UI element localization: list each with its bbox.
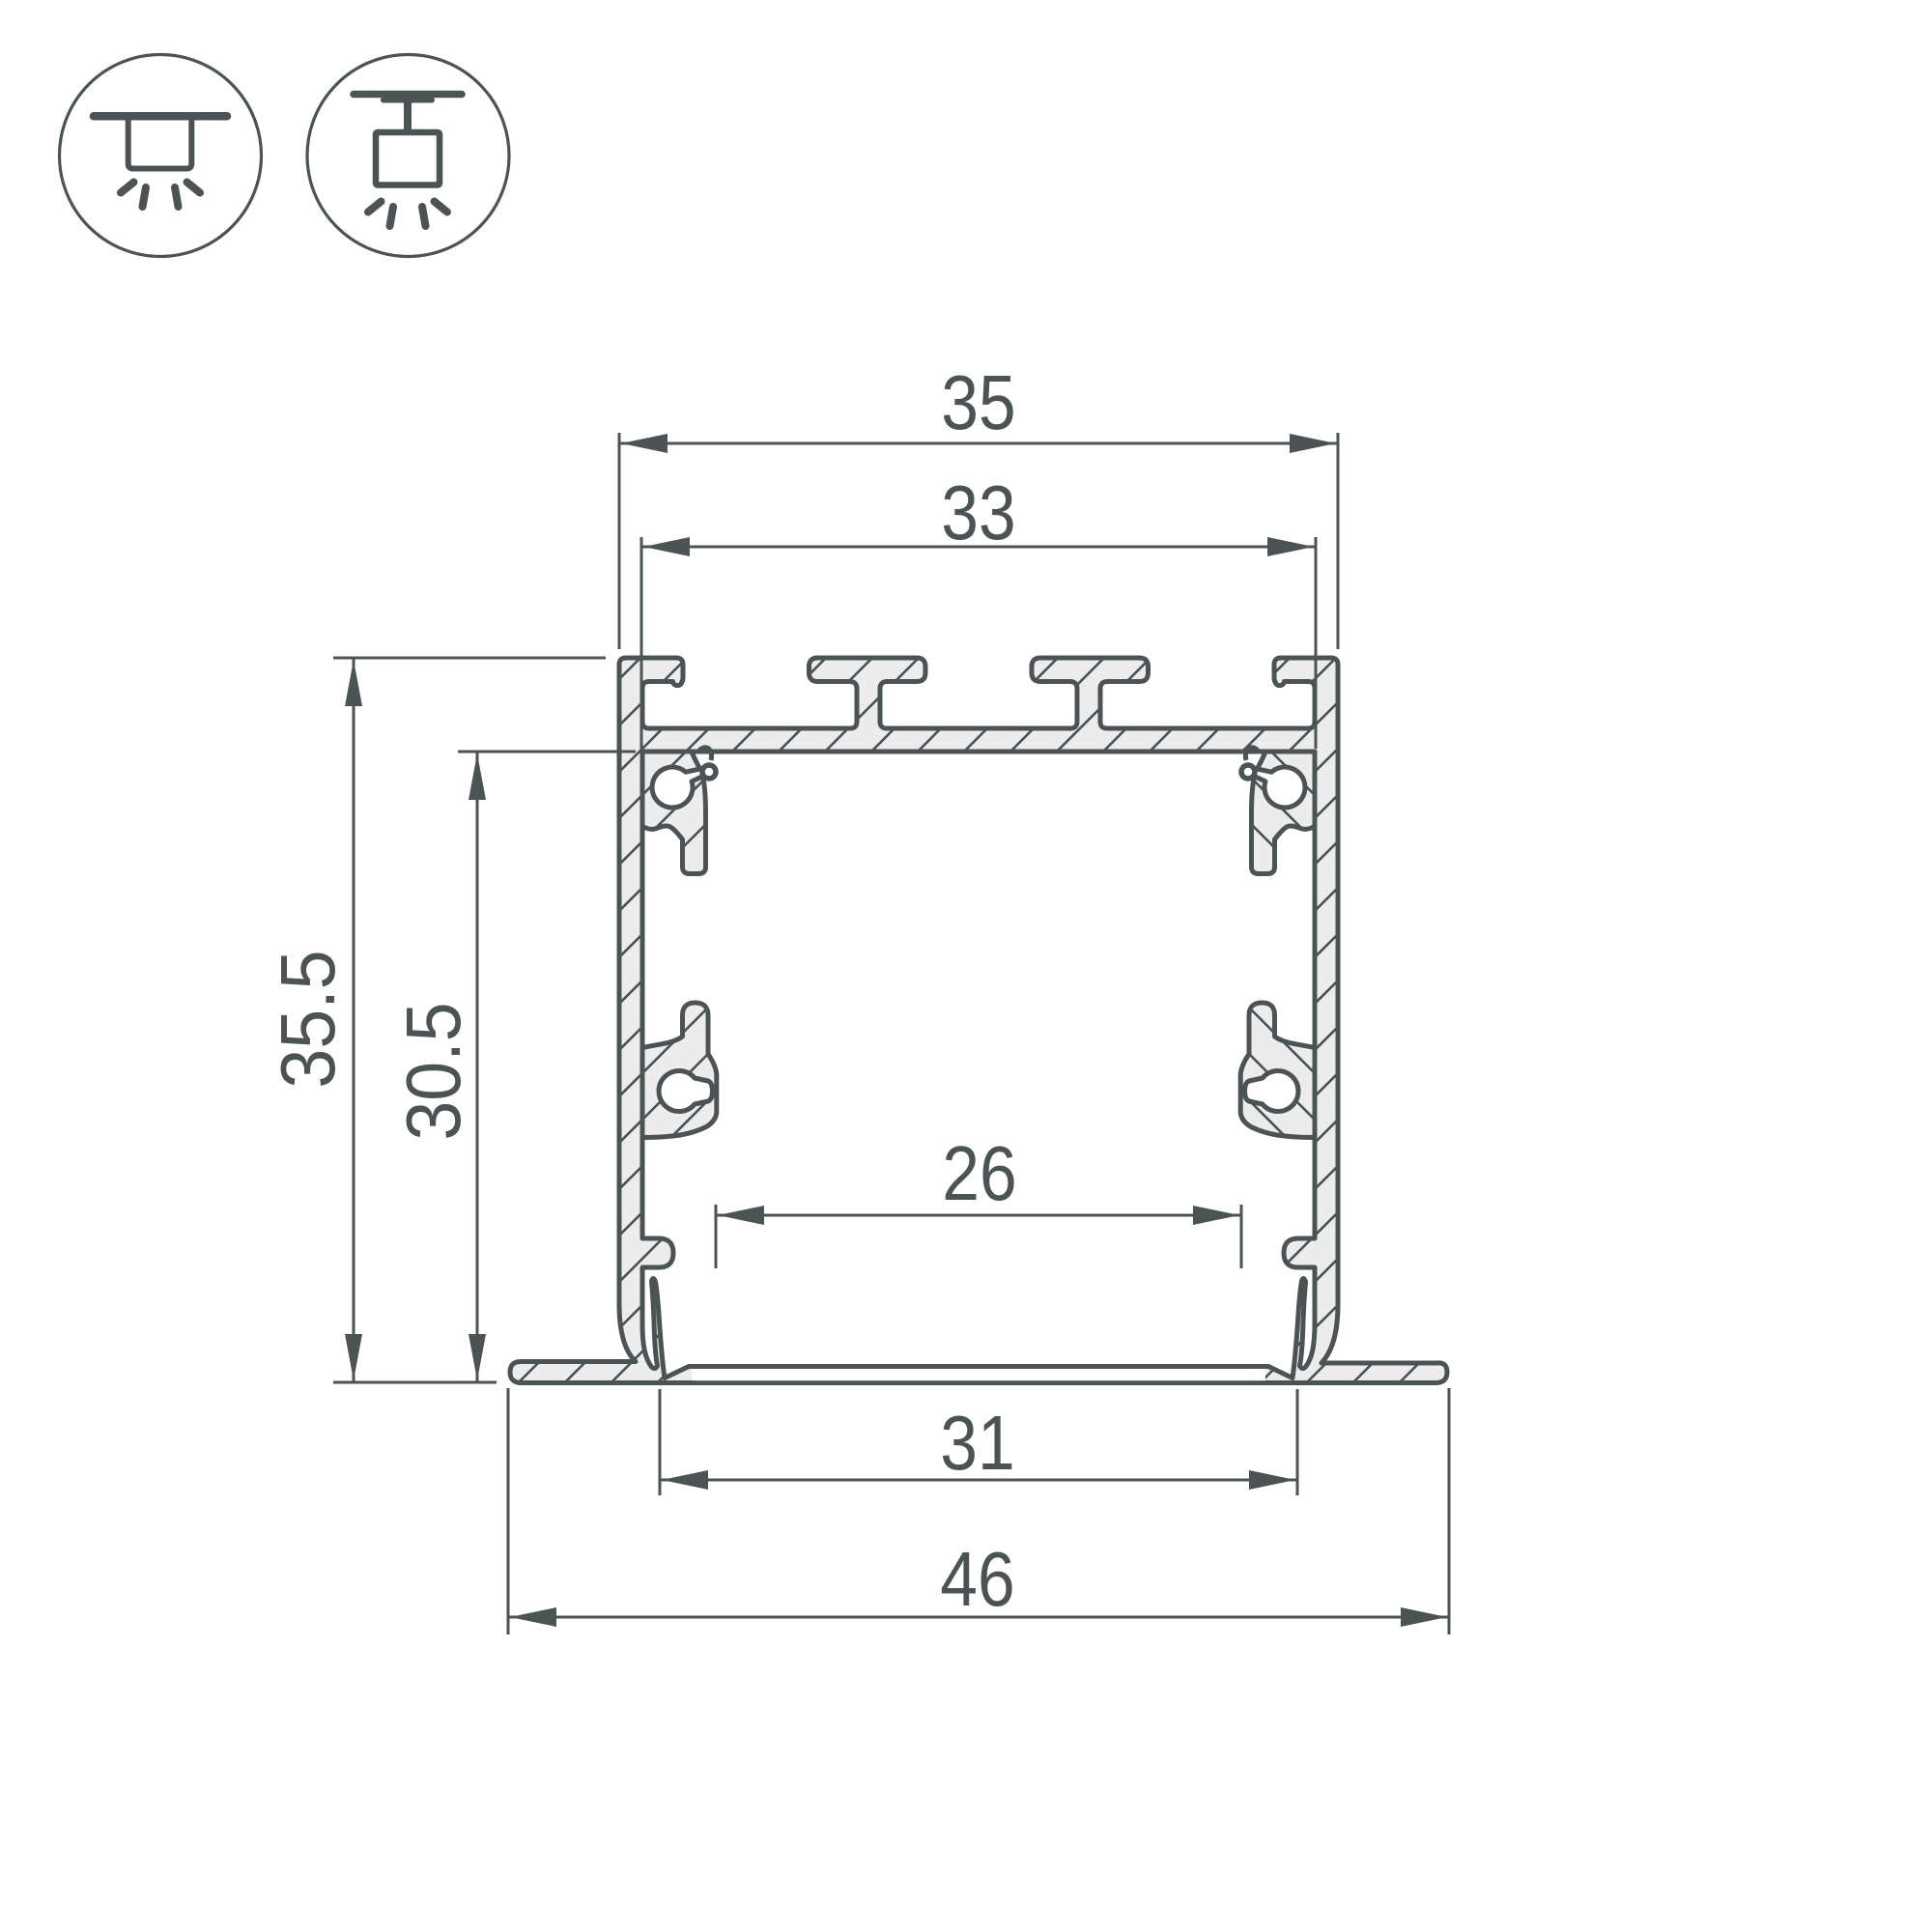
svg-text:35: 35 [941, 358, 1015, 445]
svg-text:46: 46 [940, 1535, 1014, 1622]
svg-text:33: 33 [941, 469, 1015, 555]
svg-text:26: 26 [942, 1129, 1016, 1216]
svg-text:30.5: 30.5 [390, 1002, 477, 1140]
svg-text:35.5: 35.5 [265, 950, 352, 1088]
svg-text:31: 31 [940, 1399, 1014, 1486]
